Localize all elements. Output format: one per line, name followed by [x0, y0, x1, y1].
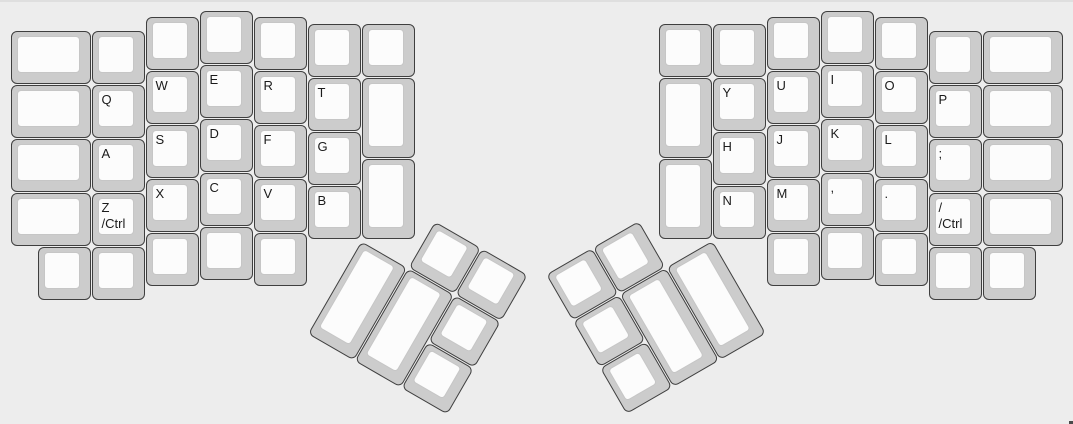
keycap-top: H [719, 137, 755, 174]
key-legend: T [315, 85, 349, 100]
keycap-top: U [773, 76, 809, 113]
keycap-top [773, 22, 809, 59]
key-legend: . [882, 186, 916, 201]
keycap-top [553, 257, 603, 307]
key-blank[interactable] [983, 193, 1063, 246]
key-blank[interactable] [11, 139, 91, 192]
keycap-top [665, 29, 701, 66]
key-blank[interactable] [362, 78, 415, 158]
keycap-top [152, 22, 188, 59]
canvas-top-edge [0, 0, 1073, 2]
keyboard-canvas: QAZ/CtrlWSXEDCRFVTGBYHNUJMIK,OL.P;//Ctrl [0, 0, 1073, 424]
key-blank[interactable] [254, 233, 307, 286]
keycap-top: L [881, 130, 917, 167]
keycap-top [773, 238, 809, 275]
key-f[interactable]: F [254, 125, 307, 178]
keycap-top [989, 90, 1052, 127]
key-blank[interactable] [308, 24, 361, 77]
key-legend: D [207, 126, 241, 141]
keycap-top: J [773, 130, 809, 167]
keycap-top [719, 29, 755, 66]
key-l[interactable]: L [875, 125, 928, 178]
key-legend: V [261, 186, 295, 201]
key-period[interactable]: . [875, 179, 928, 232]
keycap-top: K [827, 124, 863, 161]
key-legend: A [99, 146, 133, 161]
keycap-top [989, 198, 1052, 235]
key-blank[interactable] [11, 31, 91, 84]
key-g[interactable]: G [308, 132, 361, 185]
key-legend: X [153, 186, 187, 201]
keycap-top: E [206, 70, 242, 107]
key-r[interactable]: R [254, 71, 307, 124]
keycap-top [827, 16, 863, 53]
keycap-top: P [935, 90, 971, 127]
keycap-top: R [260, 76, 296, 113]
key-legend: Y [720, 85, 754, 100]
keycap-top [98, 252, 134, 289]
key-s[interactable]: S [146, 125, 199, 178]
keycap-top: Z/Ctrl [98, 198, 134, 235]
key-legend: K [828, 126, 862, 141]
key-u[interactable]: U [767, 71, 820, 124]
key-blank[interactable] [11, 85, 91, 138]
key-a[interactable]: A [92, 139, 145, 192]
key-blank[interactable] [146, 233, 199, 286]
key-semicolon[interactable]: ; [929, 139, 982, 192]
keycap-top [152, 238, 188, 275]
key-h[interactable]: H [713, 132, 766, 185]
keycap-top: Y [719, 83, 755, 120]
key-blank[interactable] [362, 24, 415, 77]
keycap-top [260, 238, 296, 275]
keycap-top: B [314, 191, 350, 228]
keycap-top: A [98, 144, 134, 181]
keycap-top [314, 29, 350, 66]
key-blank[interactable] [983, 31, 1063, 84]
keycap-top [17, 36, 80, 73]
keycap-top: . [881, 184, 917, 221]
key-legend: /Ctrl [936, 216, 970, 231]
keycap-top: M [773, 184, 809, 221]
key-legend: L [882, 132, 916, 147]
key-legend: G [315, 139, 349, 154]
key-legend: /Ctrl [99, 216, 133, 231]
keycap-top [827, 232, 863, 269]
key-blank[interactable] [983, 85, 1063, 138]
key-legend: R [261, 78, 295, 93]
key-legend: B [315, 193, 349, 208]
key-legend: E [207, 72, 241, 87]
keycap-top: Q [98, 90, 134, 127]
keycap-top [466, 255, 516, 305]
keycap-top [935, 252, 971, 289]
keycap-top [368, 83, 404, 147]
key-w[interactable]: W [146, 71, 199, 124]
key-legend: / [936, 200, 970, 215]
key-k[interactable]: K [821, 119, 874, 172]
key-blank[interactable] [659, 78, 712, 158]
keycap-top: D [206, 124, 242, 161]
keycap-top: N [719, 191, 755, 228]
key-blank[interactable] [767, 17, 820, 70]
key-blank[interactable] [875, 17, 928, 70]
key-z-ctrl[interactable]: Z/Ctrl [92, 193, 145, 246]
keycap-top [419, 228, 469, 278]
keycap-top [935, 36, 971, 73]
key-legend: P [936, 92, 970, 107]
keycap-top [665, 164, 701, 228]
key-blank[interactable] [983, 139, 1063, 192]
keycap-top: O [881, 76, 917, 113]
keycap-top: W [152, 76, 188, 113]
key-v[interactable]: V [254, 179, 307, 232]
key-blank[interactable] [929, 31, 982, 84]
key-c[interactable]: C [200, 173, 253, 226]
key-x[interactable]: X [146, 179, 199, 232]
keycap-top [607, 351, 657, 401]
keycap-top: S [152, 130, 188, 167]
key-legend: W [153, 78, 187, 93]
keycap-top: V [260, 184, 296, 221]
key-legend: C [207, 180, 241, 195]
key-legend: N [720, 193, 754, 208]
key-legend: M [774, 186, 808, 201]
key-p[interactable]: P [929, 85, 982, 138]
key-legend: Q [99, 92, 133, 107]
keycap-top: ; [935, 144, 971, 181]
keycap-top [881, 238, 917, 275]
keycap-top: , [827, 178, 863, 215]
key-e[interactable]: E [200, 65, 253, 118]
key-blank[interactable] [821, 227, 874, 280]
key-blank[interactable] [92, 31, 145, 84]
key-legend: Z [99, 200, 133, 215]
key-comma[interactable]: , [821, 173, 874, 226]
key-m[interactable]: M [767, 179, 820, 232]
key-legend: S [153, 132, 187, 147]
key-b[interactable]: B [308, 186, 361, 239]
key-blank[interactable] [92, 247, 145, 300]
key-legend: O [882, 78, 916, 93]
keycap-top [368, 164, 404, 228]
key-j[interactable]: J [767, 125, 820, 178]
key-blank[interactable] [713, 24, 766, 77]
key-y[interactable]: Y [713, 78, 766, 131]
key-q[interactable]: Q [92, 85, 145, 138]
keycap-top [989, 144, 1052, 181]
keycap-top [989, 252, 1025, 289]
keycap-top [44, 252, 80, 289]
key-blank[interactable] [38, 247, 91, 300]
keycap-top [206, 16, 242, 53]
key-blank[interactable] [659, 24, 712, 77]
key-blank[interactable] [659, 159, 712, 239]
keycap-top: C [206, 178, 242, 215]
keycap-top [665, 83, 701, 147]
key-n[interactable]: N [713, 186, 766, 239]
key-legend: F [261, 132, 295, 147]
keycap-top: F [260, 130, 296, 167]
keycap-top: //Ctrl [935, 198, 971, 235]
keycap-top [17, 90, 80, 127]
key-o[interactable]: O [875, 71, 928, 124]
key-blank[interactable] [254, 17, 307, 70]
keycap-top: T [314, 83, 350, 120]
keycap-top [260, 22, 296, 59]
key-i[interactable]: I [821, 65, 874, 118]
keycap-top [580, 304, 630, 354]
key-legend: J [774, 132, 808, 147]
key-slash-ctrl[interactable]: //Ctrl [929, 193, 982, 246]
key-legend: H [720, 139, 754, 154]
key-blank[interactable] [929, 247, 982, 300]
keycap-top [98, 36, 134, 73]
key-legend: U [774, 78, 808, 93]
key-blank[interactable] [200, 11, 253, 64]
keycap-top: X [152, 184, 188, 221]
key-legend: ; [936, 146, 970, 161]
key-blank[interactable] [362, 159, 415, 239]
key-blank[interactable] [983, 247, 1036, 300]
keycap-top [17, 144, 80, 181]
key-legend: , [828, 180, 862, 195]
key-t[interactable]: T [308, 78, 361, 131]
key-blank[interactable] [200, 227, 253, 280]
key-blank[interactable] [875, 233, 928, 286]
key-d[interactable]: D [200, 119, 253, 172]
key-legend: I [828, 72, 862, 87]
keycap-top: I [827, 70, 863, 107]
keycap-top [206, 232, 242, 269]
key-blank[interactable] [767, 233, 820, 286]
key-blank[interactable] [146, 17, 199, 70]
key-blank[interactable] [821, 11, 874, 64]
keycap-top [600, 230, 650, 280]
key-blank[interactable] [11, 193, 91, 246]
keycap-top [881, 22, 917, 59]
keycap-top [368, 29, 404, 66]
keycap-top [989, 36, 1052, 73]
keycap-top [17, 198, 80, 235]
keycap-top: G [314, 137, 350, 174]
